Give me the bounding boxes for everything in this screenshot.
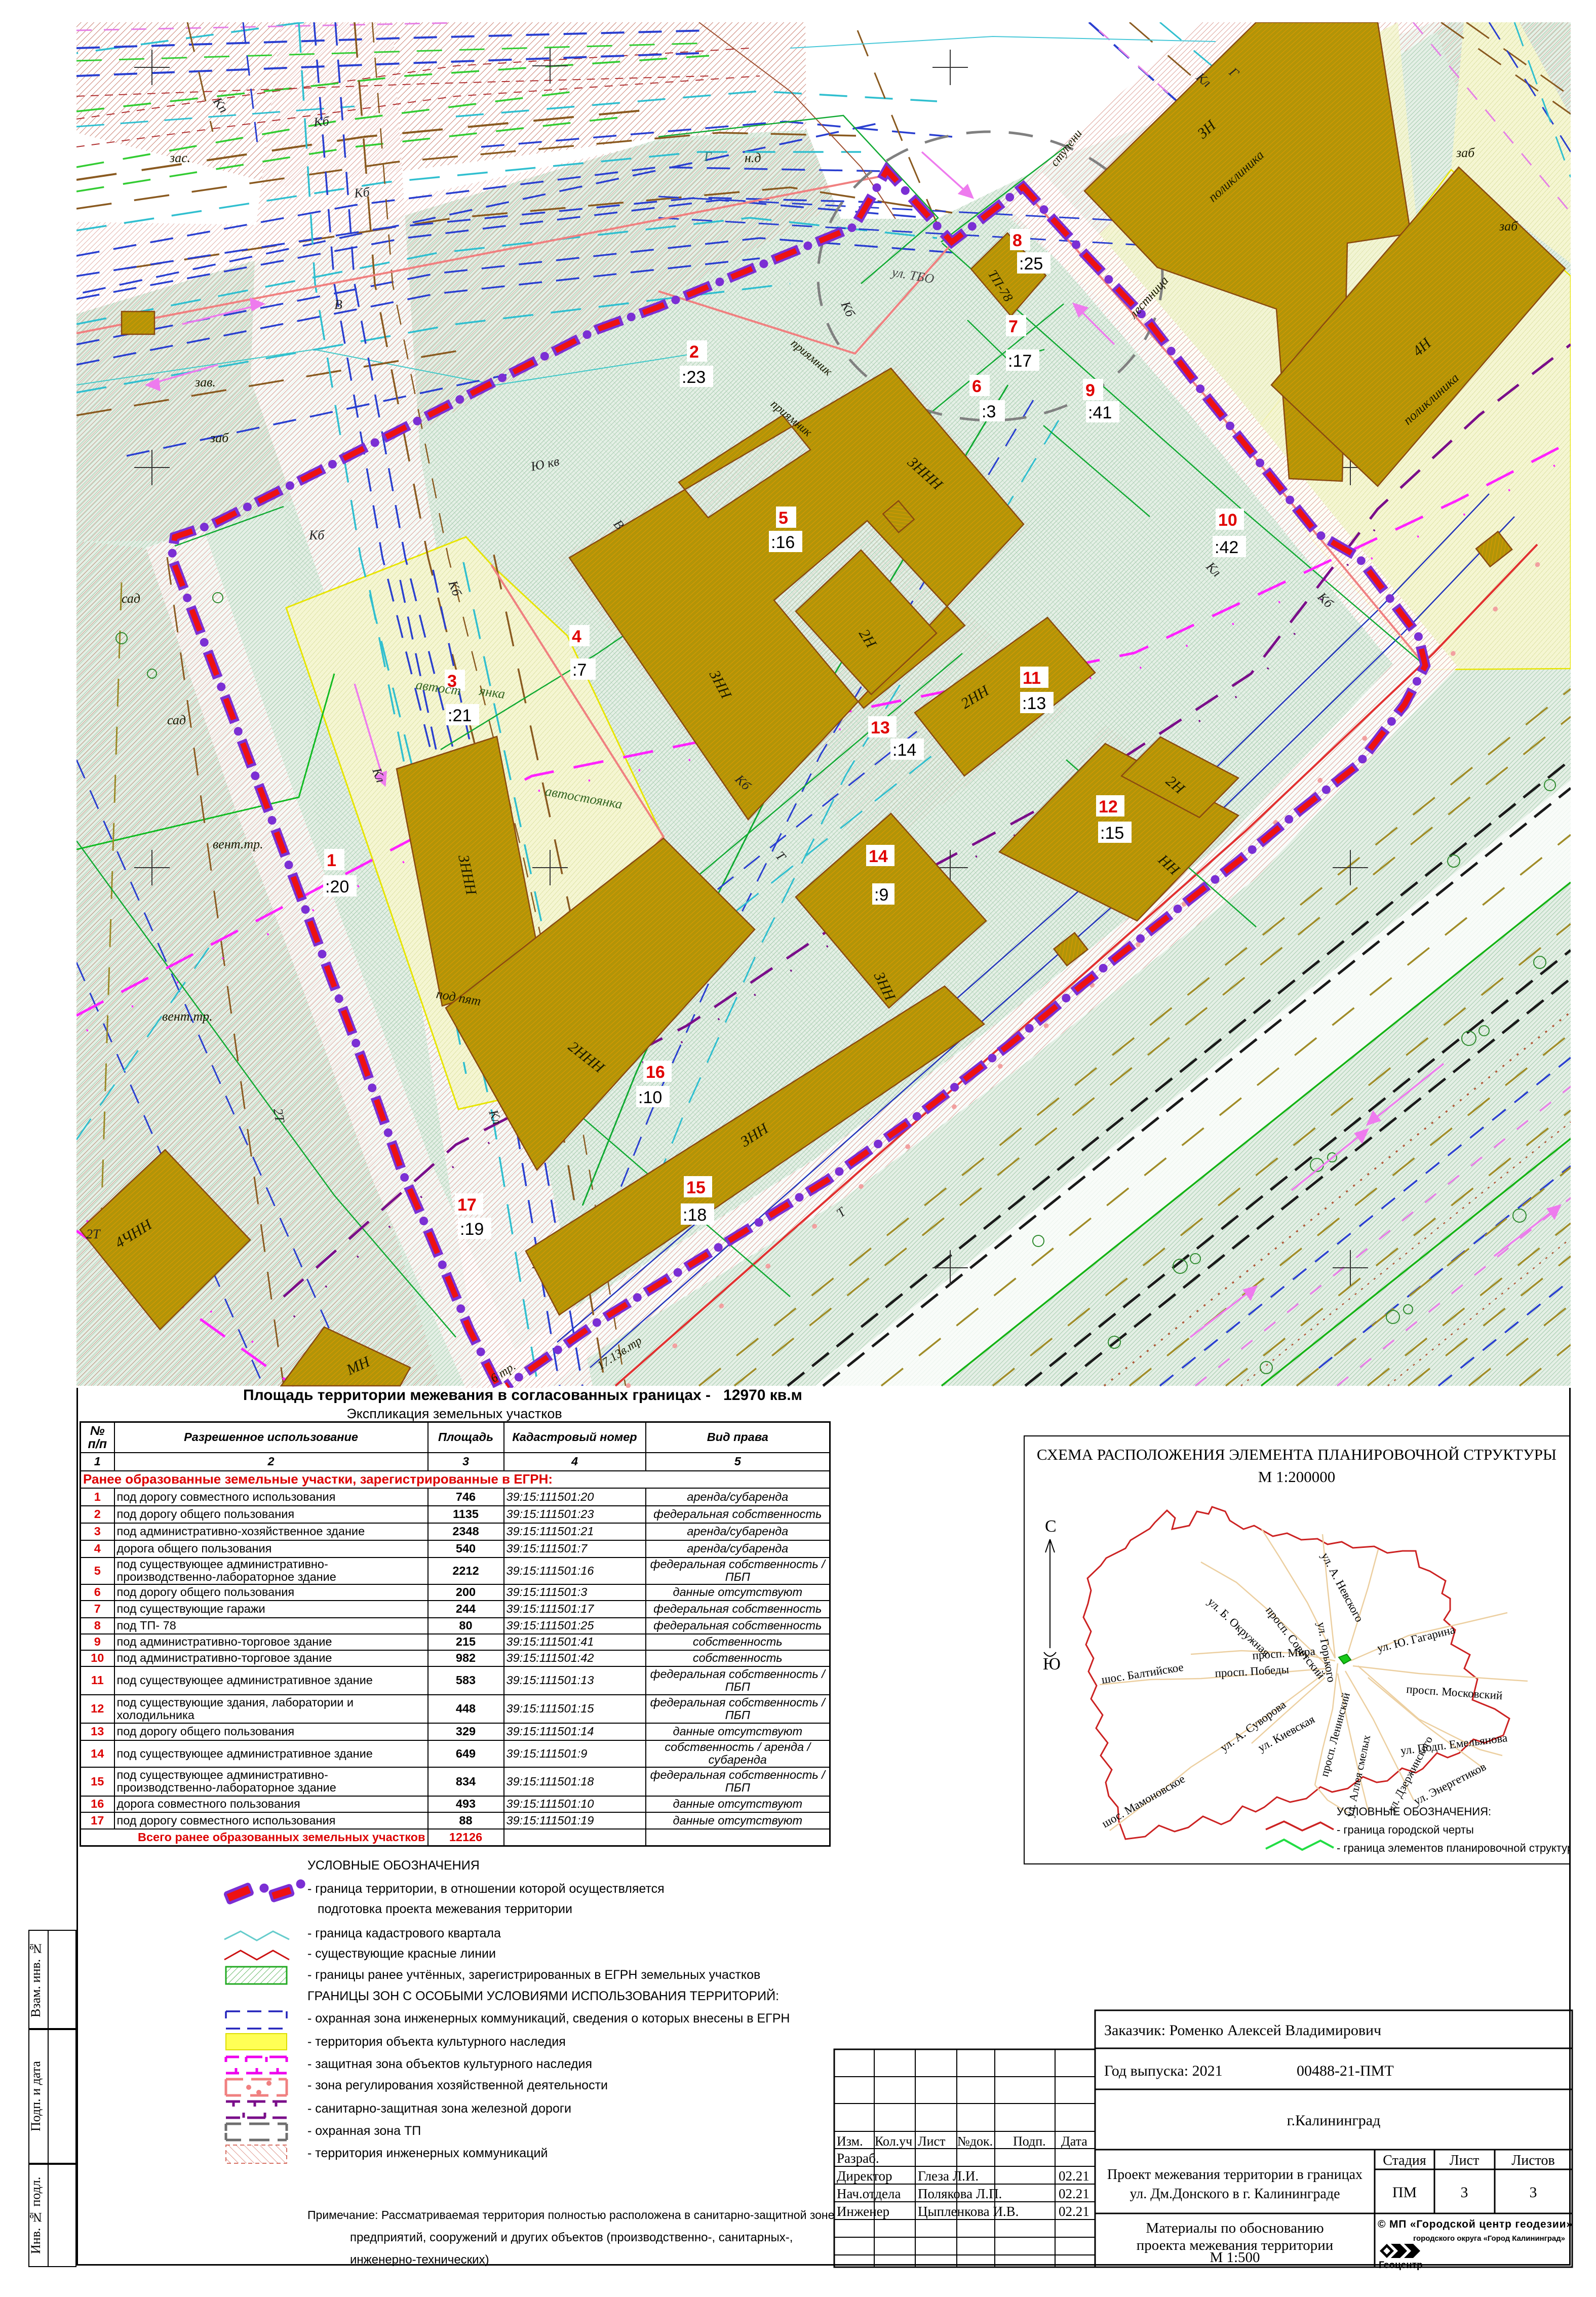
- svg-text:16: 16: [646, 1063, 665, 1082]
- svg-text:Ю: Ю: [1043, 1655, 1061, 1673]
- svg-text:1: 1: [327, 851, 336, 870]
- svg-text::18: :18: [683, 1205, 707, 1225]
- svg-text::21: :21: [448, 706, 472, 725]
- svg-text:9: 9: [1085, 381, 1095, 400]
- svg-text:8: 8: [1013, 231, 1022, 250]
- svg-text:11: 11: [1023, 669, 1041, 688]
- svg-text:зав.: зав.: [194, 375, 216, 390]
- svg-text:Г: Г: [704, 149, 712, 164]
- svg-text::20: :20: [325, 877, 349, 897]
- svg-text:предприятий, сооружений и друг: предприятий, сооружений и других объекто…: [350, 2231, 793, 2244]
- svg-text:- граница элементов планировоч: - граница элементов планировочной структ…: [1337, 1842, 1571, 1854]
- svg-text:Дата: Дата: [1061, 2134, 1087, 2149]
- svg-text:УСЛОВНЫЕ ОБОЗНАЧЕНИЯ:: УСЛОВНЫЕ ОБОЗНАЧЕНИЯ:: [1337, 1805, 1491, 1818]
- svg-text:ГРАНИЦЫ ЗОН С ОСОБЫМИ УСЛОВИЯМ: ГРАНИЦЫ ЗОН С ОСОБЫМИ УСЛОВИЯМИ ИСПОЛЬЗО…: [307, 1988, 779, 2003]
- svg-text:Нач.отдела: Нач.отдела: [837, 2186, 901, 2201]
- svg-text:- граница городской черты: - граница городской черты: [1337, 1823, 1474, 1836]
- svg-text::14: :14: [892, 741, 916, 760]
- svg-text:Кол.уч: Кол.уч: [875, 2134, 912, 2149]
- svg-text:Цыпленкова И.В.: Цыпленкова И.В.: [918, 2204, 1019, 2219]
- svg-text:заб: заб: [1499, 219, 1518, 233]
- svg-text:инженерно-технических): инженерно-технических): [350, 2253, 489, 2267]
- svg-text:- граница кадастрового квартал: - граница кадастрового квартала: [307, 1926, 501, 1940]
- svg-text:подготовка проекта межевания т: подготовка проекта межевания территории: [318, 1902, 572, 1916]
- svg-text:Кб: Кб: [313, 113, 330, 130]
- svg-text:© МП «Городской центр геодезии: © МП «Городской центр геодезии»: [1378, 2218, 1572, 2230]
- svg-text:17: 17: [457, 1195, 477, 1215]
- svg-text::41: :41: [1088, 403, 1112, 422]
- svg-text:Инженер: Инженер: [837, 2204, 889, 2219]
- svg-text:- санитарно-защитная зона желе: - санитарно-защитная зона железной дорог…: [307, 2101, 571, 2116]
- svg-text:Заказчик: Роменко Алексей Влад: Заказчик: Роменко Алексей Владимирович: [1104, 2022, 1381, 2039]
- svg-text:УСЛОВНЫЕ ОБОЗНАЧЕНИЯ: УСЛОВНЫЕ ОБОЗНАЧЕНИЯ: [307, 1858, 480, 1873]
- svg-text:Стадия: Стадия: [1383, 2153, 1426, 2168]
- svg-text::17: :17: [1008, 352, 1032, 371]
- svg-text:Кб: Кб: [353, 184, 371, 201]
- svg-text:зас.: зас.: [169, 150, 190, 165]
- svg-text:14: 14: [869, 847, 888, 866]
- svg-text:М 1:500: М 1:500: [1210, 2249, 1260, 2266]
- svg-text:Лист: Лист: [918, 2134, 945, 2149]
- svg-text:02.21: 02.21: [1059, 2186, 1089, 2201]
- svg-text:Лист: Лист: [1450, 2153, 1480, 2168]
- svg-text:Директор: Директор: [837, 2168, 892, 2184]
- svg-text:Проект межевания территории в: Проект межевания территории в границах: [1107, 2167, 1363, 2183]
- svg-text:4: 4: [572, 627, 581, 646]
- svg-text:№док.: №док.: [957, 2134, 993, 2149]
- svg-text:- существующие красные линии: - существующие красные линии: [307, 1946, 496, 1961]
- svg-text::7: :7: [572, 660, 587, 680]
- svg-text::15: :15: [1100, 824, 1124, 843]
- svg-text:н.д: н.д: [745, 150, 761, 165]
- svg-text:- граница территории, в отноше: - граница территории, в отношении которо…: [307, 1882, 665, 1896]
- svg-text:- территория объекта культурно: - территория объекта культурного наследи…: [307, 2035, 566, 2049]
- svg-text::23: :23: [682, 368, 706, 387]
- svg-text:Примечание: Рассматриваемая те: Примечание: Рассматриваемая территория п…: [307, 2208, 834, 2222]
- svg-text:- границы ранее учтённых, заре: - границы ранее учтённых, зарегистрирова…: [307, 1968, 760, 1982]
- svg-text:ПМ: ПМ: [1392, 2184, 1417, 2201]
- svg-text:10: 10: [1218, 511, 1237, 530]
- svg-text:В: В: [334, 297, 342, 312]
- svg-text:5: 5: [778, 509, 788, 528]
- svg-text:Геоцентр: Геоцентр: [1379, 2260, 1423, 2271]
- svg-text:- охранная зона инженерных ком: - охранная зона инженерных коммуникаций,…: [307, 2011, 790, 2026]
- svg-text:Глеза Л.И.: Глеза Л.И.: [918, 2168, 979, 2184]
- svg-text:- зона регулирования хозяйстве: - зона регулирования хозяйственной деяте…: [307, 2078, 608, 2092]
- svg-text::42: :42: [1215, 538, 1238, 557]
- svg-text:Полякова Л.П.: Полякова Л.П.: [918, 2186, 1002, 2201]
- svg-text:Подп.: Подп.: [1013, 2134, 1046, 2149]
- svg-text:02.21: 02.21: [1059, 2204, 1089, 2219]
- svg-text:- охранная зона ТП: - охранная зона ТП: [307, 2124, 421, 2138]
- svg-text::25: :25: [1019, 254, 1043, 274]
- svg-text:Изм.: Изм.: [837, 2134, 863, 2149]
- svg-text:00488-21-ПМТ: 00488-21-ПМТ: [1297, 2062, 1394, 2079]
- svg-text:ул. Дм.Донского в г. Калинингр: ул. Дм.Донского в г. Калининграде: [1130, 2186, 1340, 2202]
- svg-text:городского округа «Город Калин: городского округа «Город Калининград»: [1413, 2234, 1565, 2243]
- svg-text:02.21: 02.21: [1059, 2168, 1089, 2184]
- svg-text::9: :9: [874, 885, 888, 905]
- svg-text:2Т: 2Т: [86, 1227, 101, 1241]
- svg-text:Кб: Кб: [308, 528, 325, 542]
- svg-text::16: :16: [771, 533, 795, 552]
- svg-text:Листов: Листов: [1511, 2153, 1555, 2168]
- svg-text:2: 2: [689, 342, 699, 362]
- svg-text:3: 3: [1530, 2184, 1537, 2201]
- svg-text:Разраб.: Разраб.: [837, 2151, 879, 2166]
- svg-text:13: 13: [871, 718, 890, 737]
- svg-text:15: 15: [686, 1178, 706, 1197]
- svg-text:заб: заб: [1456, 145, 1475, 160]
- svg-text:сад: сад: [167, 713, 186, 727]
- svg-text:СХЕМА РАСПОЛОЖЕНИЯ ЭЛЕМЕНТА ПЛ: СХЕМА РАСПОЛОЖЕНИЯ ЭЛЕМЕНТА ПЛАНИРОВОЧНО…: [1037, 1446, 1556, 1463]
- svg-text::19: :19: [460, 1220, 484, 1239]
- svg-text:3: 3: [1461, 2184, 1468, 2201]
- svg-text:вент.тр.: вент.тр.: [213, 837, 263, 851]
- svg-text:12: 12: [1099, 797, 1118, 816]
- svg-text:заб: заб: [210, 431, 229, 445]
- svg-text::13: :13: [1022, 694, 1046, 713]
- svg-text:сад: сад: [122, 591, 140, 606]
- svg-text:- защитная зона объектов культ: - защитная зона объектов культурного нас…: [307, 2057, 592, 2071]
- svg-text::3: :3: [982, 402, 996, 421]
- svg-text:7: 7: [1008, 317, 1018, 336]
- svg-text:С: С: [1045, 1517, 1057, 1536]
- svg-text:Год выпуска: 2021: Год выпуска: 2021: [1104, 2062, 1223, 2079]
- svg-text::10: :10: [638, 1088, 662, 1107]
- svg-text:вент.тр.: вент.тр.: [162, 1009, 213, 1024]
- svg-text:Материалы по обоснованию: Материалы по обоснованию: [1146, 2220, 1323, 2236]
- svg-text:- территория инженерных коммун: - территория инженерных коммуникаций: [307, 2146, 548, 2160]
- svg-text:г.Калининград: г.Калининград: [1287, 2112, 1381, 2129]
- svg-text:6: 6: [972, 377, 982, 396]
- svg-text:М 1:200000: М 1:200000: [1258, 1468, 1335, 1486]
